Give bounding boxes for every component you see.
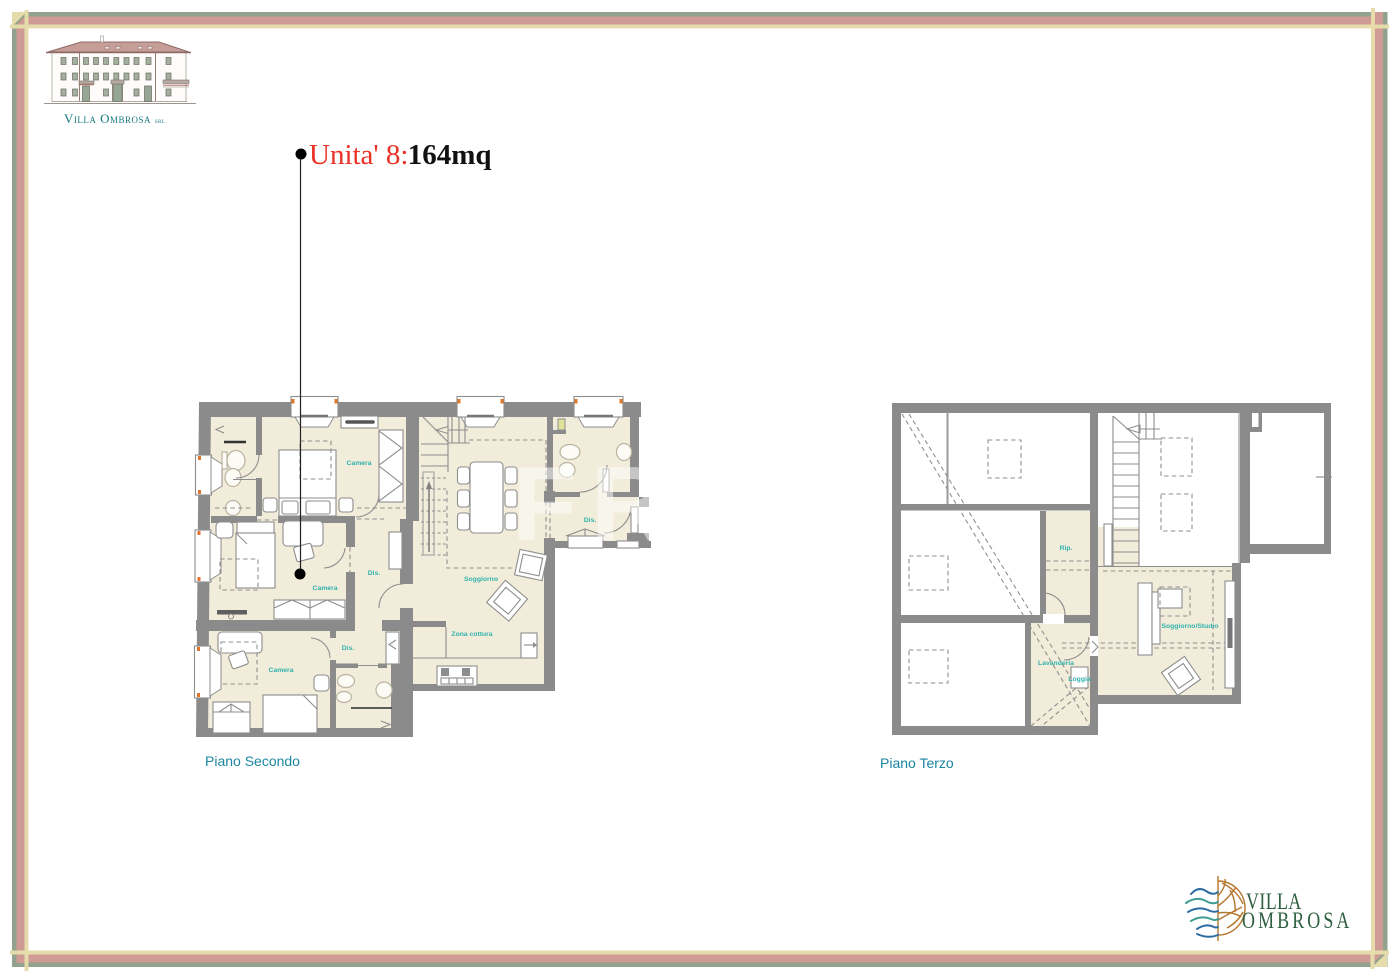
svg-text:Unita' 8: 164mq: Unita' 8: 164mq [309,139,492,171]
svg-text:Loggia: Loggia [1068,676,1090,683]
svg-text:Piano Secondo: Piano Secondo [205,753,300,769]
svg-text:FR: FR [512,445,681,563]
svg-text:OMBROSA: OMBROSA [1242,909,1353,934]
svg-text:Rip.: Rip. [1060,545,1073,552]
svg-text:Villa Ombrosa srl: Villa Ombrosa srl [64,111,165,126]
svg-text:Dis.: Dis. [368,570,381,577]
svg-text:Camera: Camera [313,585,338,592]
svg-text:Lavanderia: Lavanderia [1038,660,1074,667]
svg-text:Soggiorno: Soggiorno [464,576,498,583]
svg-text:Zona cottura: Zona cottura [451,631,492,638]
svg-text:Camera: Camera [347,460,372,467]
svg-text:Piano Terzo: Piano Terzo [880,755,954,771]
svg-text:Soggiorno/Studio: Soggiorno/Studio [1161,623,1218,630]
svg-text:Camera: Camera [269,667,294,674]
svg-text:Dis.: Dis. [342,645,355,652]
